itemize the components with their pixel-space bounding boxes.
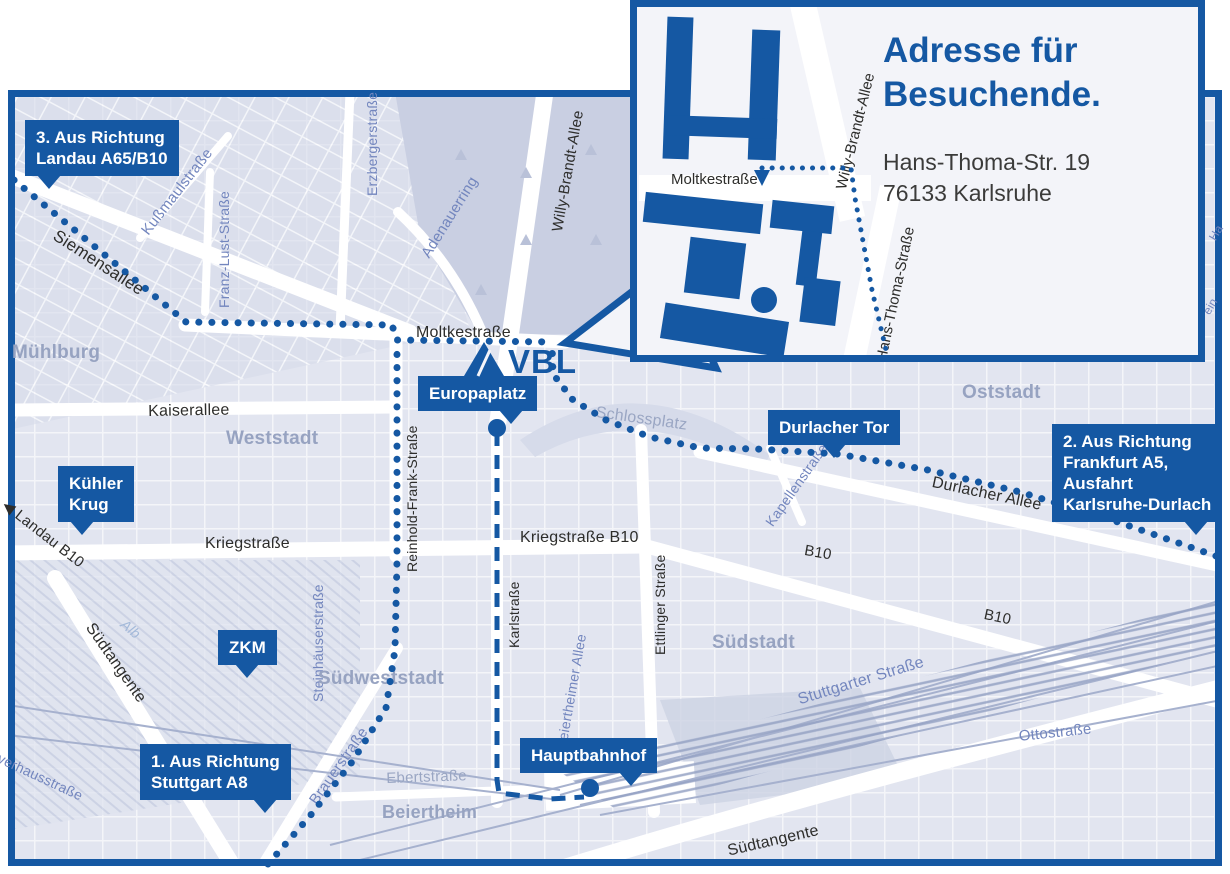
route-from-landau bbox=[14, 180, 552, 342]
vbl-logo: VBL bbox=[462, 340, 577, 378]
inset-entrance-arrow bbox=[754, 170, 770, 186]
route-from-frankfurt bbox=[552, 344, 1216, 556]
europaplatz-stop bbox=[488, 419, 506, 437]
anfahrtsskizze-karlsruhe: SiemensalleeKußmaulstraßeFranz-Lust-Stra… bbox=[0, 0, 1230, 874]
vbl-logo-text: VBL bbox=[508, 345, 577, 378]
vbl-logo-triangle-icon bbox=[462, 340, 506, 378]
route-layer bbox=[0, 0, 1230, 874]
route-to-hauptbahnhof bbox=[497, 432, 584, 799]
route-from-stuttgart bbox=[268, 342, 397, 864]
inset-route bbox=[762, 168, 886, 350]
hauptbahnhof-stop bbox=[581, 779, 599, 797]
